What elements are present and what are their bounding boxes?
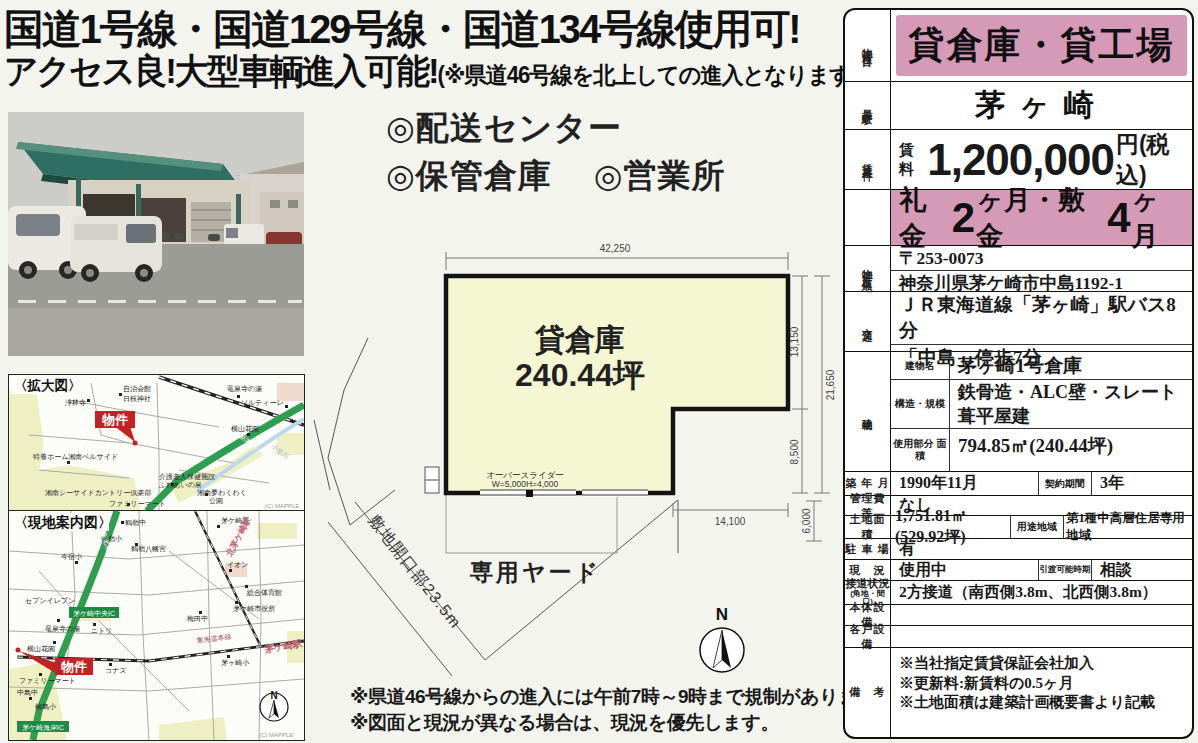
map1-label-care2: ふれあいの泉 [158, 481, 202, 489]
row-parking: 駐 車 場 有 [845, 539, 1192, 560]
land-label: 土地面積 [845, 516, 891, 538]
map2-label-konaz: コナズ [105, 667, 127, 674]
key-money-n2: 4 [1107, 197, 1130, 239]
map2-label-onsen: 竜泉寺の湯 [45, 624, 80, 633]
map2-label-chigasaki-es: 茅ヶ崎小 [221, 659, 249, 666]
row-equip-main: 本体設備 [845, 605, 1192, 626]
map1-title: 〈拡大図〉 [14, 378, 82, 393]
map2-chuo-ic: 茅ケ崎中央IC [73, 610, 115, 617]
contract-term-value: 3年 [1092, 472, 1192, 495]
map1-label-home: 特養ホーム湘南ベルサイド [33, 453, 118, 461]
property-info-panel: 物件種目 貸倉庫・貸工場 最寄駅 茅ヶ崎 賃貸条件 賃料 1,200,000 円… [843, 8, 1194, 739]
row-location-label: 物件所在地 [845, 246, 891, 291]
building-structure-value: 鉄骨造・ALC壁・スレート葺平屋建 [950, 380, 1192, 428]
parking-label: 駐 車 場 [845, 539, 891, 559]
plan-dim-top [446, 252, 788, 270]
plan-building-area: 240.44坪 [515, 357, 645, 393]
plan-dim-top-label: 42,250 [600, 243, 631, 254]
parking-value: 有 [891, 539, 1192, 559]
map2-label-seven: セブンイレブン [25, 597, 75, 604]
rent-value-cell: 賃料 1,200,000 円(税込) [891, 130, 1192, 189]
map1-credit: (C) MAPPLE [265, 503, 299, 509]
row-building-label: 建物 [845, 352, 891, 471]
footnotes: ※県道46号線からの進入には午前7時～9時まで規制があります。 ※図面と現況が異… [350, 684, 850, 735]
building-name-row: 建物名 茅ヶ崎1号倉庫 [891, 352, 1192, 380]
key-money-t2: ヶ月・敷金 [976, 182, 1106, 254]
key-money-t3: ヶ月 [1132, 182, 1184, 254]
map1-label-park2: 公園 [209, 497, 223, 505]
row-road: 接道状況 (角地・間口) 2方接道（南西側3.8m、北西側3.8m） [845, 581, 1192, 605]
rent-label: 賃料 [899, 141, 923, 179]
plan-dim-bottom [673, 503, 788, 517]
station-value: 茅ヶ崎 [891, 82, 1192, 129]
map2-label-umeda-jhs: 梅田中 [186, 615, 208, 623]
plan-dim-right-lower: 8,500 [789, 439, 800, 464]
row-location: 物件所在地 〒253-0073 神奈川県茅ケ崎市中島1192-1 [845, 246, 1192, 292]
road-value: 2方接道（南西側3.8m、北西側3.8m） [891, 581, 1192, 604]
map2-label-nakajima-jhs: 中島中 [17, 689, 38, 697]
map1-label-garden: 横山花園 [231, 425, 259, 433]
map1-label-temple: 浄林寺 [65, 399, 86, 407]
building-area-value: 794.85㎡(240.44坪) [950, 429, 1192, 471]
row-access: 交通 ＪＲ東海道線「茅ヶ崎」駅バス8分 「中島」停歩7分 [845, 292, 1192, 352]
building-name-label: 建物名 [891, 352, 950, 379]
remarks-line3: ※土地面積は建築計画概要書より記載 [899, 693, 1155, 713]
map2-label-garden: 横山花園 [27, 645, 55, 653]
site-plan: 敷地開口部23.5m 貸倉庫 240.44坪 オーバースライダー W=5,000… [310, 190, 845, 743]
equip-main-value [891, 605, 1192, 625]
contract-term-label: 契約期間 [1038, 472, 1092, 495]
row-equip-unit: 各戸設備 [845, 626, 1192, 648]
row-terms-label: 賃貸条件 [845, 130, 891, 189]
map1-label-hall: 自治会館 [123, 385, 151, 393]
row-key-money: 礼金 2 ヶ月・敷金 4 ヶ月 [845, 190, 1192, 246]
headline-line1: 国道1号線・国道129号線・国道134号線使用可! [4, 8, 817, 51]
plan-dim-right-bottom: 6,000 [801, 508, 812, 533]
map2-compass-n: N [270, 690, 277, 701]
plan-doors [480, 489, 648, 497]
map2-marker-text: 物件 [60, 659, 87, 674]
zone-label: 用途地域 [1010, 516, 1064, 538]
map1-label-park1: 湘南夢わくわく [197, 489, 247, 497]
postal-code: 〒253-0073 [891, 246, 1192, 271]
building-structure-row: 構造・規模 鉄骨造・ALC壁・スレート葺平屋建 [891, 380, 1192, 429]
footnote-2: ※図面と現況が異なる場合は、現況を優先します。 [350, 710, 850, 736]
map2-tokaido-line: 東海道本線 [196, 633, 232, 645]
map2-label-imajuku-es: 今宿小 [61, 552, 82, 560]
headline-line2-main: アクセス良!大型車輌進入可能! [4, 51, 438, 90]
plan-dim-right [792, 276, 830, 541]
plan-yard-label: 専用ヤード [469, 559, 601, 585]
headline-line2: アクセス良!大型車輌進入可能!(※県道46号線を北上しての進入となります。) [4, 51, 808, 91]
footnote-1: ※県道46号線からの進入には午前7時～9時まで規制があります。 [350, 684, 850, 710]
row-property-type: 物件種目 貸倉庫・貸工場 [845, 10, 1192, 82]
land-value: 1,751.81㎡(529.92坪) [891, 516, 1010, 538]
headline: 国道1号線・国道129号線・国道134号線使用可! アクセス良!大型車輌進入可能… [4, 8, 842, 91]
row-remarks: 備 考 ※当社指定賃貸保証会社加入 ※更新料:新賃料の0.5ヶ月 ※土地面積は建… [845, 648, 1192, 737]
plan-compass-n: N [716, 605, 728, 624]
headline-line2-note: (※県道46号線を北上しての進入となります。) [438, 62, 879, 88]
map2-kaigan-ic: 茅ケ崎海岸IC [22, 724, 64, 732]
map2-label-gym: 総合体育館 [246, 588, 282, 597]
remarks-line1: ※当社指定賃貸保証会社加入 [899, 654, 1094, 674]
usage-item-2: ◎保管倉庫 [386, 157, 552, 194]
row-station-label: 最寄駅 [845, 82, 891, 129]
row-station: 最寄駅 茅ヶ崎 [845, 82, 1192, 130]
rent-amount: 1,200,000 [927, 138, 1114, 182]
row-built: 築 年 月 1990年11月 契約期間 3年 [845, 472, 1192, 496]
building-area-label: 使用部分 面積 [891, 429, 950, 471]
plan-dim-right-upper: 13,150 [789, 326, 800, 357]
handover-label: 引渡可能時期 [1038, 560, 1092, 580]
map1-label-care1: 介護老人保健施設 [159, 473, 215, 481]
map1-label-conv: ファミリーマート [109, 500, 166, 507]
plan-door-line2: W=5,000H=4,000 [492, 479, 559, 489]
map2-label-hachimangu: 鶴嶺八幡宮 [131, 545, 166, 553]
usage-list: ◎配送センター ◎保管倉庫◎営業所 [386, 104, 836, 200]
plan-dim-right-total: 21,650 [825, 369, 836, 400]
plan-dim-bottom-label: 14,100 [715, 516, 746, 527]
map2-title: 〈現地案内図〉 [14, 514, 112, 530]
map2-label-nitori: ニトリ [91, 627, 113, 634]
remarks-line2: ※更新料:新賃料の0.5ヶ月 [899, 674, 1073, 694]
map2-compass: N [260, 690, 288, 721]
equip-unit-value [891, 626, 1192, 647]
row-property-type-label: 物件種目 [845, 10, 891, 81]
map2-label-tsurumine-jhs: 鶴嶺中 [125, 519, 146, 527]
row-access-label: 交通 [845, 292, 891, 351]
property-photo [8, 112, 304, 356]
map1-label-sortile: ソルティーレ [241, 399, 284, 407]
map2-label-city-hall: 茅ケ崎市役所 [233, 604, 275, 612]
map2-label-conv: ファミリーマート [19, 677, 76, 684]
key-money-cell: 礼金 2 ヶ月・敷金 4 ヶ月 [891, 190, 1192, 245]
remarks-label: 備 考 [845, 648, 891, 737]
plan-frontage-label: 敷地開口部23.5m [366, 511, 465, 631]
usage-item-1: ◎配送センター [386, 104, 836, 152]
property-type-value: 貸倉庫・貸工場 [896, 15, 1187, 76]
key-money-n1: 2 [952, 197, 975, 239]
building-structure-label: 構造・規模 [891, 380, 950, 428]
equip-unit-label: 各戸設備 [845, 626, 891, 647]
building-area-row: 使用部分 面積 794.85㎡(240.44坪) [891, 429, 1192, 471]
status-value: 使用中 [891, 560, 1038, 580]
plan-compass: N [700, 605, 744, 672]
map2-credit: (C) MAPPLE [259, 732, 293, 738]
map2-label-yanagishima-es: 柳島小 [35, 703, 56, 711]
building-name-value: 茅ヶ崎1号倉庫 [950, 352, 1192, 379]
map1-label-golf: 湘南シーサイドカントリー倶楽部 [45, 489, 151, 497]
map1-marker-text: 物件 [101, 412, 128, 427]
zone-value: 第1種中高層住居専用地域 [1064, 516, 1192, 538]
row-building: 建物 建物名 茅ヶ崎1号倉庫 構造・規模 鉄骨造・ALC壁・スレート葺平屋建 使… [845, 352, 1192, 472]
row-key-money-label [845, 190, 891, 245]
map2-label-aeon: イオン [227, 561, 249, 569]
built-value: 1990年11月 [891, 472, 1038, 495]
handover-value: 相談 [1092, 560, 1192, 580]
access-line1: ＪＲ東海道線「茅ヶ崎」駅バス8分 [891, 292, 1192, 345]
row-land: 土地面積 1,751.81㎡(529.92坪) 用途地域 第1種中高層住居専用地… [845, 516, 1192, 539]
remarks-value: ※当社指定賃貸保証会社加入 ※更新料:新賃料の0.5ヶ月 ※土地面積は建築計画概… [891, 648, 1192, 737]
map-enlarged: 新湘南バイパス 小出川 物件 浄林寺 自治会館 日枝神社 竜泉寺の湯 ソルティー… [8, 374, 305, 512]
map1-label-shrine: 日枝神社 [123, 395, 151, 403]
plan-yard [446, 493, 617, 553]
map-guide: 茅ケ崎中央IC 茅ケ崎海岸IC 物件 鶴嶺中 鶴嶺小 鶴嶺八幡宮 今宿小 セブン… [8, 510, 305, 741]
plan-building-label: 貸倉庫 [534, 323, 625, 357]
usage-item-3: ◎営業所 [594, 157, 726, 194]
map2-labels: 鶴嶺中 鶴嶺小 鶴嶺八幡宮 今宿小 セブンイレブン 竜泉寺の湯 ニトリ 横山花園… [17, 517, 282, 711]
map1-label-onsen: 竜泉寺の湯 [227, 384, 262, 393]
key-money-t1: 礼金 [899, 182, 951, 254]
photo-road [8, 308, 304, 356]
row-status: 現 況 使用中 引渡可能時期 相談 [845, 560, 1192, 581]
